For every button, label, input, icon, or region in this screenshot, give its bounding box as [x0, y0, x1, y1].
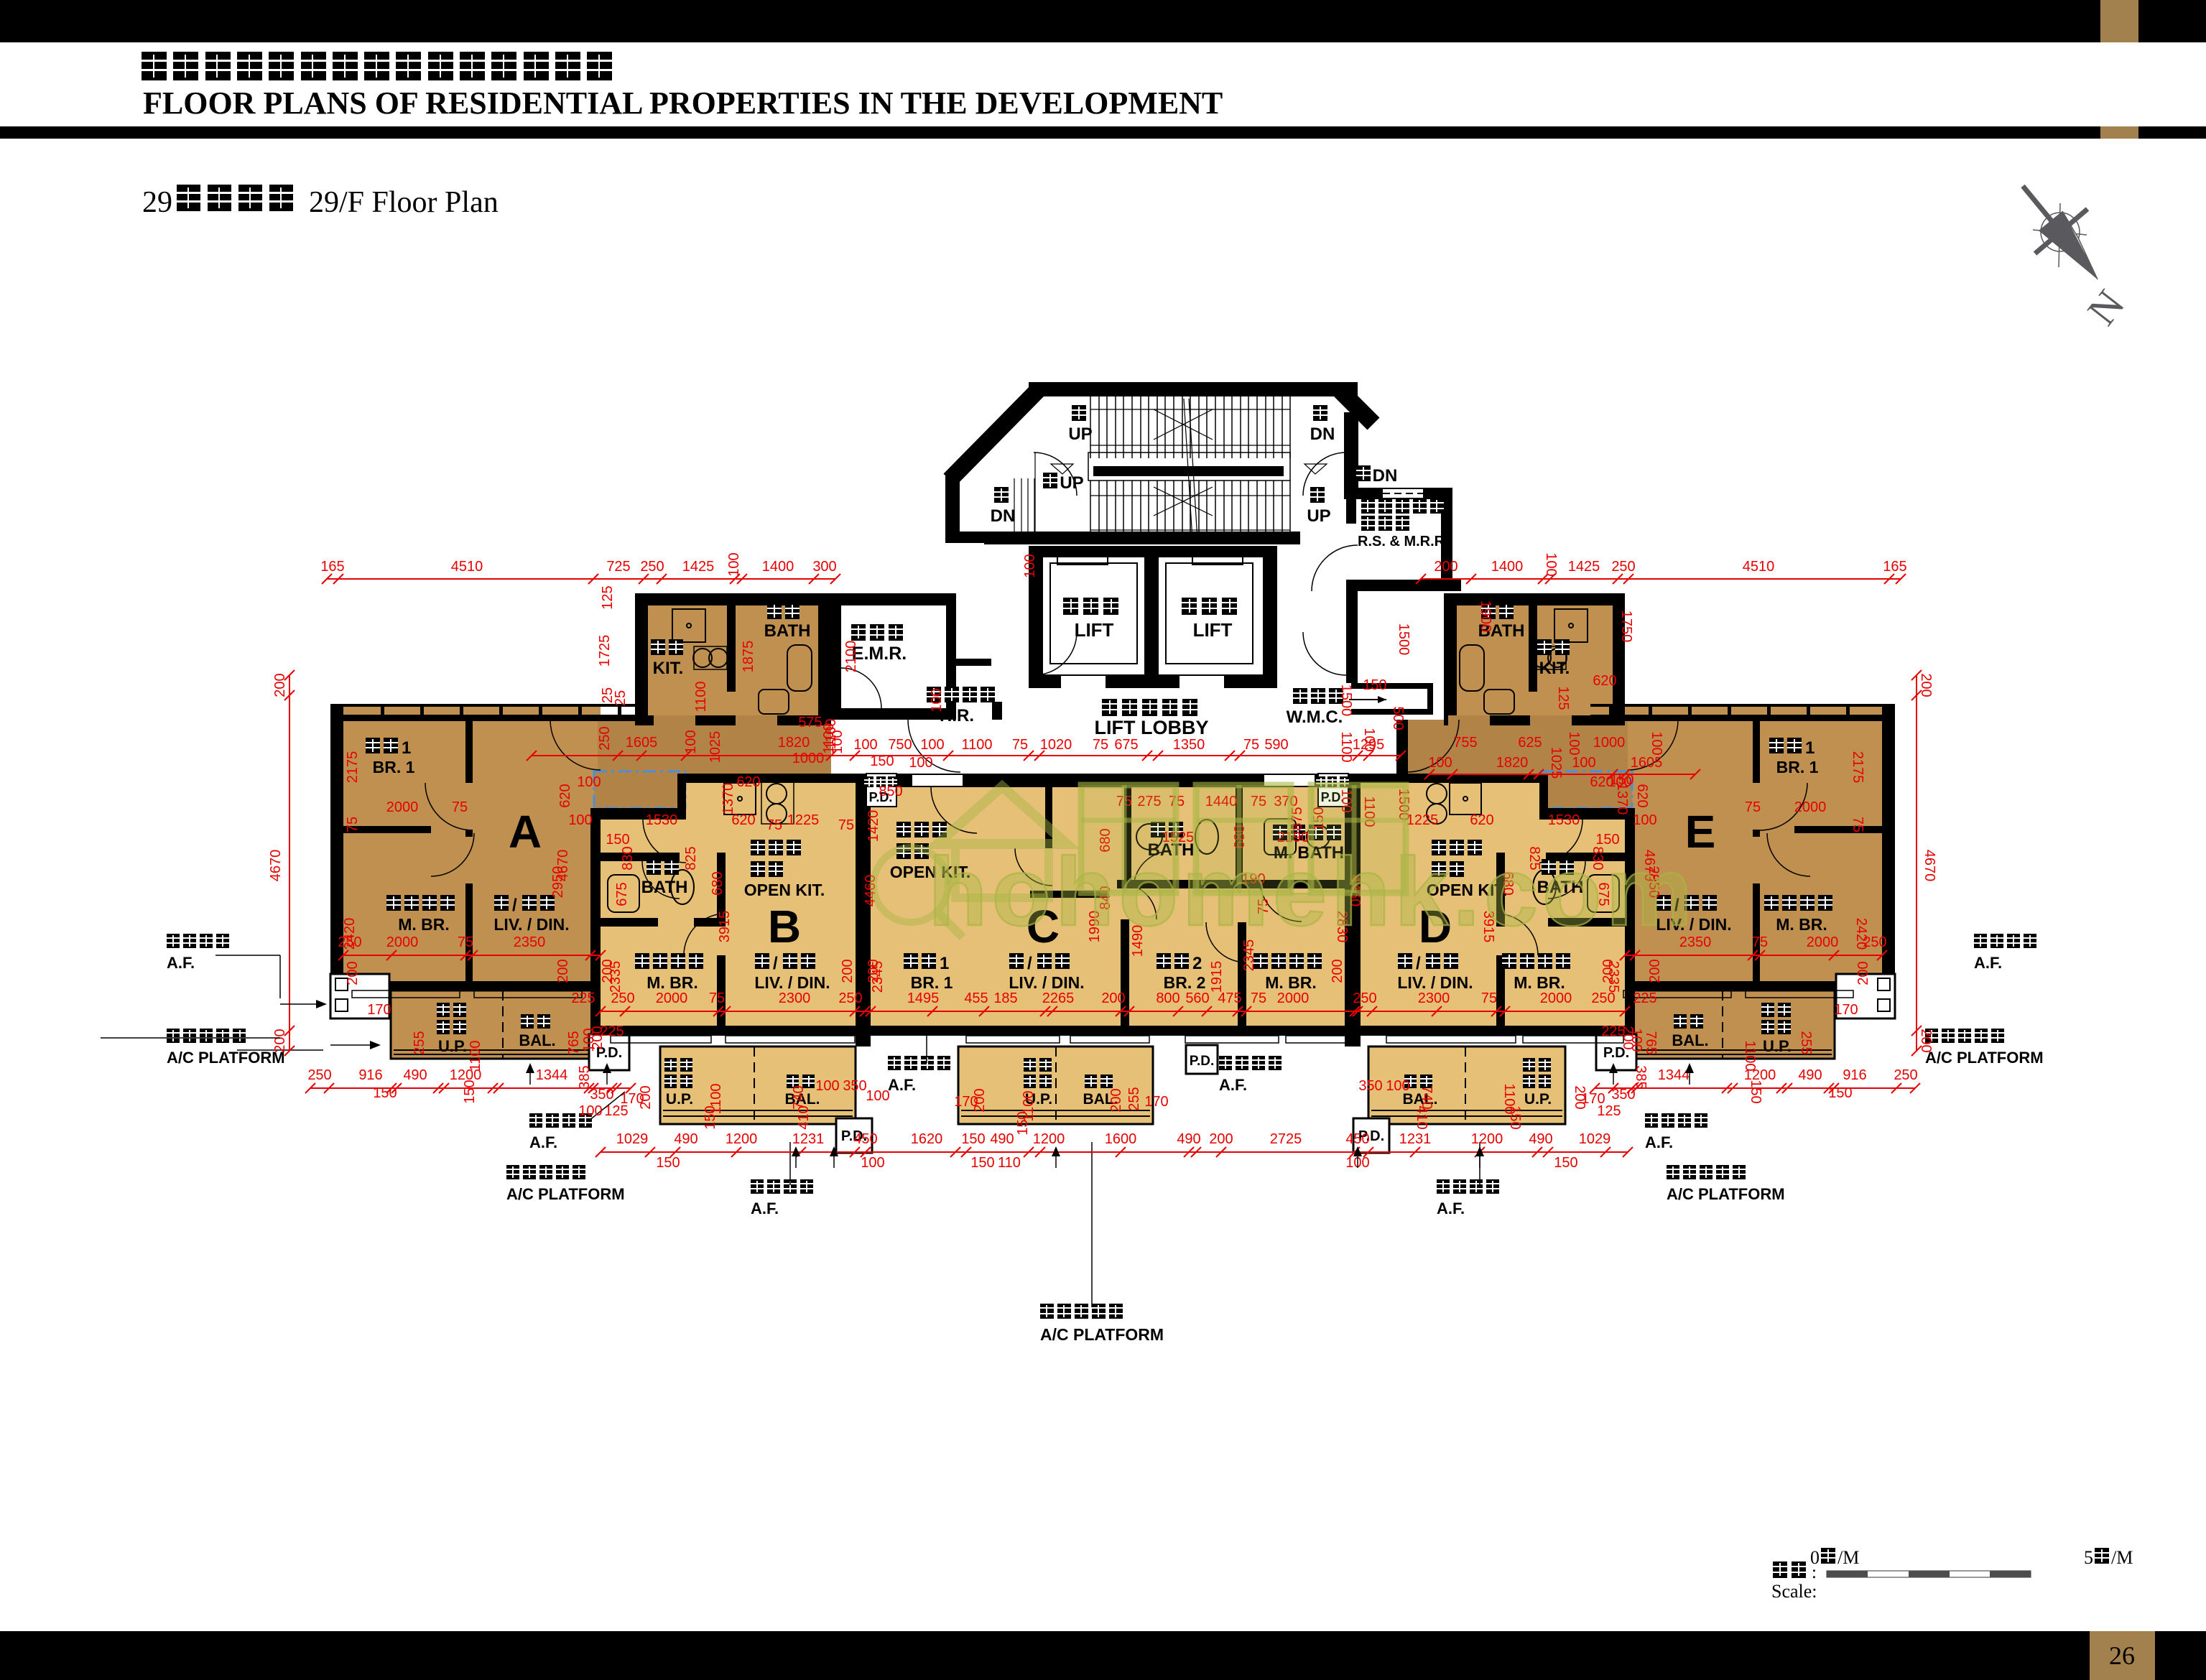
svg-text:200: 200 [638, 1085, 654, 1109]
svg-text:A.F.: A.F. [529, 1133, 557, 1151]
svg-text:2000: 2000 [656, 990, 688, 1006]
svg-text:A.F.: A.F. [1437, 1199, 1465, 1217]
svg-text:1605: 1605 [1631, 755, 1663, 771]
svg-text:4510: 4510 [451, 559, 483, 575]
svg-text:255: 255 [1798, 1031, 1814, 1054]
svg-text:A: A [509, 806, 542, 858]
svg-text:2000: 2000 [1277, 990, 1310, 1006]
svg-text:A/C PLATFORM: A/C PLATFORM [167, 1049, 285, 1067]
svg-text:150: 150 [870, 753, 894, 769]
svg-text:255: 255 [1126, 1087, 1142, 1110]
svg-text:1200: 1200 [726, 1131, 758, 1147]
svg-text:1029: 1029 [616, 1131, 649, 1147]
svg-text:LIV. / DIN.: LIV. / DIN. [493, 915, 569, 934]
svg-text:H.R.: H.R. [940, 706, 974, 725]
svg-text:2000: 2000 [1540, 990, 1572, 1006]
svg-text:100: 100 [1022, 554, 1038, 577]
svg-text:765: 765 [566, 1031, 582, 1054]
svg-text:A.F.: A.F. [167, 954, 195, 972]
svg-text:M. BR.: M. BR. [398, 915, 450, 934]
svg-text:1225: 1225 [787, 812, 820, 828]
svg-text:125: 125 [600, 585, 616, 609]
svg-text:26: 26 [2109, 1641, 2135, 1670]
svg-text:100: 100 [683, 730, 699, 753]
svg-text:75: 75 [345, 817, 361, 832]
svg-text:1029: 1029 [1579, 1131, 1611, 1147]
svg-text:75: 75 [1251, 990, 1266, 1006]
svg-text:350: 350 [590, 1087, 613, 1103]
svg-text:M. BR.: M. BR. [1776, 915, 1827, 934]
svg-text:410: 410 [796, 1105, 812, 1129]
svg-text:350: 350 [1611, 1087, 1635, 1103]
svg-text:1750: 1750 [1618, 611, 1634, 643]
svg-text:1200: 1200 [1471, 1131, 1503, 1147]
svg-text:hohomehk.com: hohomehk.com [928, 837, 1697, 946]
svg-text:3915: 3915 [717, 911, 733, 943]
svg-text:200: 200 [1108, 1088, 1124, 1112]
svg-text:450: 450 [853, 1131, 877, 1147]
svg-text:1025: 1025 [1548, 747, 1564, 779]
svg-text:450: 450 [1345, 1131, 1369, 1147]
svg-text:1400: 1400 [762, 559, 794, 575]
svg-text:UP: UP [1068, 424, 1092, 444]
svg-text:/M: /M [1837, 1547, 1859, 1568]
svg-text:255: 255 [412, 1031, 427, 1054]
svg-text:U.P.: U.P. [1524, 1091, 1552, 1108]
svg-text:75: 75 [1012, 737, 1028, 753]
svg-text:A/C PLATFORM: A/C PLATFORM [1925, 1049, 2044, 1067]
svg-text:590: 590 [1264, 737, 1288, 753]
svg-text:LIFT LOBBY: LIFT LOBBY [1095, 717, 1209, 738]
svg-text:/: / [512, 896, 517, 915]
svg-text:200: 200 [345, 961, 361, 985]
svg-text:2000: 2000 [1807, 934, 1839, 950]
svg-text:916: 916 [1843, 1067, 1866, 1083]
svg-text:2335: 2335 [1605, 961, 1621, 993]
svg-text:165: 165 [320, 559, 344, 575]
svg-text:LIFT: LIFT [1075, 619, 1114, 641]
svg-text:575: 575 [798, 715, 822, 730]
svg-text:150: 150 [961, 1131, 985, 1147]
svg-text:1620: 1620 [911, 1131, 943, 1147]
svg-text:1025: 1025 [708, 731, 723, 764]
svg-text:250: 250 [1894, 1067, 1917, 1083]
svg-text:150: 150 [703, 1105, 718, 1129]
svg-text:A.F.: A.F. [1219, 1076, 1247, 1094]
svg-text:29/F Floor Plan: 29/F Floor Plan [309, 186, 499, 219]
svg-text:125: 125 [604, 1103, 628, 1119]
svg-text:1530: 1530 [646, 812, 678, 828]
svg-text:490: 490 [990, 1131, 1014, 1147]
svg-text:LIFT: LIFT [1193, 619, 1233, 641]
svg-text:LIV. / DIN.: LIV. / DIN. [754, 973, 830, 992]
svg-text:2335: 2335 [608, 961, 624, 993]
svg-text:DN: DN [991, 506, 1016, 526]
svg-text:300: 300 [812, 559, 836, 575]
svg-text:P.D.: P.D. [1190, 1054, 1215, 1069]
svg-text:250: 250 [1591, 990, 1615, 1006]
svg-text:75: 75 [458, 934, 473, 950]
svg-text:1820: 1820 [778, 735, 810, 751]
svg-text:FLOOR PLANS OF RESIDENTIAL PRO: FLOOR PLANS OF RESIDENTIAL PROPERTIES IN… [143, 85, 1223, 121]
svg-text:620: 620 [1634, 784, 1650, 807]
svg-text:DN: DN [1310, 424, 1335, 444]
svg-text:350: 350 [1358, 1078, 1382, 1094]
svg-text:A.F.: A.F. [888, 1076, 916, 1094]
svg-text:75: 75 [452, 799, 468, 815]
svg-text:560: 560 [1185, 990, 1209, 1006]
svg-text:2265: 2265 [1042, 990, 1075, 1006]
svg-text:150: 150 [1828, 1085, 1852, 1101]
svg-text:A.F.: A.F. [1645, 1133, 1673, 1151]
svg-text:75: 75 [1850, 817, 1866, 832]
svg-text:100: 100 [726, 552, 742, 576]
svg-text:150: 150 [656, 1155, 680, 1171]
svg-text:BAL.: BAL. [1672, 1031, 1708, 1049]
svg-text:4670: 4670 [1922, 850, 1937, 882]
svg-text:1600: 1600 [1105, 1131, 1137, 1147]
svg-text:455: 455 [964, 990, 988, 1006]
svg-text:725: 725 [606, 559, 630, 575]
svg-text:250: 250 [597, 726, 613, 750]
svg-text:200: 200 [1918, 1029, 1934, 1052]
svg-text:1605: 1605 [626, 735, 658, 751]
svg-text:1295: 1295 [1353, 737, 1385, 753]
svg-text:250: 250 [640, 559, 664, 575]
svg-text:2300: 2300 [779, 990, 811, 1006]
svg-text:2950: 2950 [550, 866, 566, 899]
svg-text:1495: 1495 [907, 990, 940, 1006]
svg-text:200: 200 [590, 1026, 606, 1049]
svg-text:100: 100 [1608, 774, 1631, 790]
svg-text:490: 490 [1177, 1131, 1200, 1147]
svg-text:LIV. / DIN.: LIV. / DIN. [1009, 973, 1084, 992]
svg-text:200: 200 [1647, 959, 1663, 983]
svg-text:U.P.: U.P. [438, 1037, 467, 1055]
svg-text:200: 200 [840, 959, 856, 983]
svg-text:E.M.R.: E.M.R. [852, 644, 907, 664]
svg-text:755: 755 [1453, 735, 1477, 751]
svg-text:125: 125 [1555, 686, 1571, 710]
svg-text:1231: 1231 [792, 1131, 825, 1147]
svg-text:1200: 1200 [1744, 1067, 1776, 1083]
svg-text:170: 170 [1144, 1094, 1168, 1110]
svg-text:250: 250 [838, 990, 862, 1006]
svg-text:625: 625 [1518, 735, 1542, 751]
svg-text:200: 200 [1620, 1026, 1636, 1049]
svg-text:200: 200 [555, 959, 571, 983]
svg-text:100: 100 [920, 737, 944, 753]
svg-text:/M: /M [2111, 1547, 2133, 1568]
svg-text:R.S. & M.R.R.: R.S. & M.R.R. [1358, 534, 1449, 549]
svg-text:620: 620 [557, 784, 573, 807]
svg-text:490: 490 [674, 1131, 698, 1147]
svg-text:200: 200 [1918, 673, 1934, 697]
svg-text:675: 675 [614, 882, 630, 906]
svg-text:100: 100 [1633, 812, 1656, 828]
svg-text:850: 850 [879, 784, 902, 799]
svg-text:W.M.C.: W.M.C. [1287, 707, 1343, 727]
svg-text:1100: 1100 [961, 737, 992, 753]
svg-text:490: 490 [1798, 1067, 1822, 1083]
svg-text:100: 100 [1543, 552, 1559, 576]
svg-text:1915: 1915 [1209, 961, 1225, 993]
svg-text:BR. 1: BR. 1 [373, 758, 415, 776]
svg-text:2350: 2350 [514, 934, 546, 950]
svg-text:250: 250 [338, 934, 361, 950]
svg-text:2175: 2175 [345, 751, 361, 784]
svg-text:200: 200 [1855, 961, 1871, 985]
svg-text:250: 250 [1611, 559, 1635, 575]
svg-text:100: 100 [577, 774, 601, 790]
svg-text:OPEN KIT.: OPEN KIT. [744, 881, 825, 899]
svg-text:0: 0 [1810, 1547, 1820, 1568]
svg-text:200: 200 [1101, 990, 1125, 1006]
svg-text:100: 100 [578, 1103, 602, 1119]
svg-text:100: 100 [1572, 755, 1595, 771]
svg-text:350: 350 [843, 1078, 866, 1094]
svg-text:2: 2 [1192, 954, 1202, 973]
svg-text:1400: 1400 [1491, 559, 1524, 575]
svg-text:1350: 1350 [1173, 737, 1205, 753]
svg-text:1: 1 [402, 738, 411, 758]
svg-text:1820: 1820 [1496, 755, 1529, 771]
svg-text:1000: 1000 [792, 751, 825, 766]
svg-text:100: 100 [866, 1088, 889, 1104]
svg-text:100: 100 [909, 755, 932, 771]
svg-text:2300: 2300 [1418, 990, 1450, 1006]
svg-text:170: 170 [1834, 1002, 1858, 1018]
svg-text:75: 75 [709, 990, 725, 1006]
svg-text:250: 250 [307, 1067, 331, 1083]
svg-text:150: 150 [1748, 1080, 1764, 1103]
svg-text:1200: 1200 [1033, 1131, 1065, 1147]
svg-text:1100: 1100 [1338, 731, 1354, 762]
svg-text:916: 916 [358, 1067, 382, 1083]
svg-text:1900: 1900 [1478, 600, 1493, 633]
svg-text:BR. 2: BR. 2 [1164, 973, 1206, 992]
svg-text:BATH: BATH [764, 621, 811, 641]
svg-text:75: 75 [1752, 934, 1768, 950]
svg-text:100: 100 [568, 812, 592, 828]
svg-text:/: / [1416, 954, 1421, 973]
svg-text:1000: 1000 [1593, 735, 1626, 751]
svg-text:LIV. / DIN.: LIV. / DIN. [1397, 973, 1473, 992]
svg-text:1020: 1020 [1040, 737, 1072, 753]
svg-text:225: 225 [1633, 990, 1656, 1006]
svg-text:200: 200 [1330, 959, 1345, 983]
svg-text:100: 100 [1649, 731, 1664, 755]
svg-text:Scale:: Scale: [1771, 1581, 1817, 1602]
svg-text:U.P.: U.P. [1763, 1037, 1792, 1055]
svg-text:200: 200 [1434, 559, 1457, 575]
svg-text:100: 100 [1386, 1078, 1409, 1094]
svg-text:1: 1 [1805, 738, 1815, 758]
svg-text:UP: UP [1307, 506, 1330, 526]
svg-text:1425: 1425 [682, 559, 715, 575]
svg-text:1425: 1425 [1568, 559, 1600, 575]
svg-text:1500: 1500 [1338, 684, 1354, 717]
svg-text:1231: 1231 [1399, 1131, 1432, 1147]
svg-text:75: 75 [1093, 737, 1108, 753]
svg-text:100: 100 [815, 1078, 839, 1094]
svg-text:1420: 1420 [866, 810, 881, 843]
svg-text:225: 225 [571, 990, 595, 1006]
svg-text:BR. 1: BR. 1 [1776, 758, 1819, 776]
svg-text:620: 620 [1593, 673, 1616, 689]
svg-text:2000: 2000 [386, 934, 419, 950]
svg-text:410: 410 [1414, 1105, 1429, 1129]
svg-text:A.F.: A.F. [1974, 954, 2002, 972]
svg-text:1100: 1100 [693, 681, 709, 712]
svg-text:2000: 2000 [386, 799, 419, 815]
svg-text:75: 75 [766, 817, 782, 833]
svg-text:200: 200 [1209, 1131, 1233, 1147]
svg-text:490: 490 [403, 1067, 427, 1083]
svg-text:165: 165 [1883, 559, 1906, 575]
svg-text:1344: 1344 [1658, 1067, 1690, 1083]
svg-text:200: 200 [272, 673, 288, 697]
svg-text:825: 825 [683, 846, 699, 870]
svg-text:100: 100 [1428, 755, 1452, 771]
svg-text:5: 5 [2084, 1547, 2093, 1568]
svg-text:110: 110 [998, 1155, 1021, 1171]
svg-text:1725: 1725 [597, 635, 613, 667]
svg-text:M. BR.: M. BR. [646, 973, 698, 992]
svg-text:A/C PLATFORM: A/C PLATFORM [1040, 1325, 1164, 1344]
svg-text:2725: 2725 [1270, 1131, 1302, 1147]
svg-text:800: 800 [1156, 990, 1180, 1006]
svg-text:75: 75 [1745, 799, 1761, 815]
svg-text:1500: 1500 [1396, 623, 1412, 656]
svg-text:A/C PLATFORM: A/C PLATFORM [506, 1185, 625, 1203]
svg-text:KIT.: KIT. [1539, 659, 1570, 678]
svg-text:KIT.: KIT. [653, 659, 684, 678]
svg-text:BR. 1: BR. 1 [911, 973, 953, 992]
svg-text:150: 150 [373, 1085, 397, 1101]
svg-text:200: 200 [972, 1088, 988, 1112]
svg-text:750: 750 [888, 737, 912, 753]
svg-text:830: 830 [620, 846, 636, 870]
svg-text:U.P.: U.P. [666, 1091, 693, 1108]
svg-text:A/C PLATFORM: A/C PLATFORM [1667, 1185, 1785, 1203]
svg-text:150: 150 [1554, 1155, 1577, 1171]
svg-text:2175: 2175 [1850, 751, 1866, 784]
svg-text:150: 150 [462, 1080, 478, 1103]
svg-text:100: 100 [853, 737, 877, 753]
svg-text:200: 200 [272, 1029, 288, 1052]
svg-text:100: 100 [929, 688, 945, 712]
svg-text:250: 250 [1863, 934, 1886, 950]
svg-text:1: 1 [940, 954, 949, 973]
svg-text:DN: DN [1373, 466, 1398, 486]
svg-text:BATH: BATH [641, 878, 688, 897]
svg-text:2000: 2000 [1794, 799, 1827, 815]
svg-text:/: / [773, 954, 778, 973]
svg-text:385: 385 [577, 1065, 593, 1089]
svg-text:490: 490 [1529, 1131, 1552, 1147]
svg-text:B: B [768, 901, 801, 952]
svg-text:125: 125 [1597, 1103, 1621, 1119]
svg-text:25: 25 [613, 690, 629, 706]
svg-text:A.F.: A.F. [751, 1199, 779, 1217]
svg-text:620: 620 [1470, 812, 1493, 828]
svg-text:4510: 4510 [1743, 559, 1775, 575]
svg-text:29: 29 [142, 186, 172, 219]
svg-text:2345: 2345 [870, 961, 886, 993]
svg-text:1875: 1875 [741, 641, 756, 673]
svg-text:100: 100 [1566, 731, 1582, 755]
svg-text:680: 680 [710, 871, 726, 895]
svg-text:100: 100 [861, 1155, 884, 1171]
svg-text:75: 75 [1243, 737, 1259, 753]
svg-text:/: / [1027, 954, 1032, 973]
svg-text:150: 150 [970, 1155, 994, 1171]
svg-text:150: 150 [1507, 1105, 1523, 1129]
svg-text:2100: 2100 [843, 641, 859, 673]
svg-text:1370: 1370 [720, 783, 736, 815]
svg-text:M. BR.: M. BR. [1514, 973, 1565, 992]
svg-text:765: 765 [1643, 1031, 1659, 1054]
svg-text:1344: 1344 [536, 1067, 568, 1083]
svg-text:75: 75 [1481, 990, 1497, 1006]
svg-text:200: 200 [1572, 1085, 1588, 1109]
svg-text:500: 500 [1390, 706, 1406, 730]
svg-text:75: 75 [838, 817, 854, 833]
svg-text:BAL.: BAL. [519, 1031, 555, 1049]
svg-text:M. BR.: M. BR. [1265, 973, 1317, 992]
svg-text:675: 675 [1114, 737, 1138, 753]
svg-text:1200: 1200 [450, 1067, 482, 1083]
svg-text:620: 620 [736, 774, 760, 790]
svg-text:4670: 4670 [268, 850, 284, 882]
svg-text:1100: 1100 [823, 718, 839, 749]
svg-text:150: 150 [606, 832, 629, 848]
svg-text:170: 170 [367, 1002, 391, 1018]
svg-text:185: 185 [993, 990, 1017, 1006]
svg-text:150: 150 [1363, 677, 1386, 693]
svg-text:1530: 1530 [1548, 812, 1580, 828]
svg-text:150: 150 [1015, 1111, 1031, 1135]
svg-text:250: 250 [1353, 990, 1376, 1006]
